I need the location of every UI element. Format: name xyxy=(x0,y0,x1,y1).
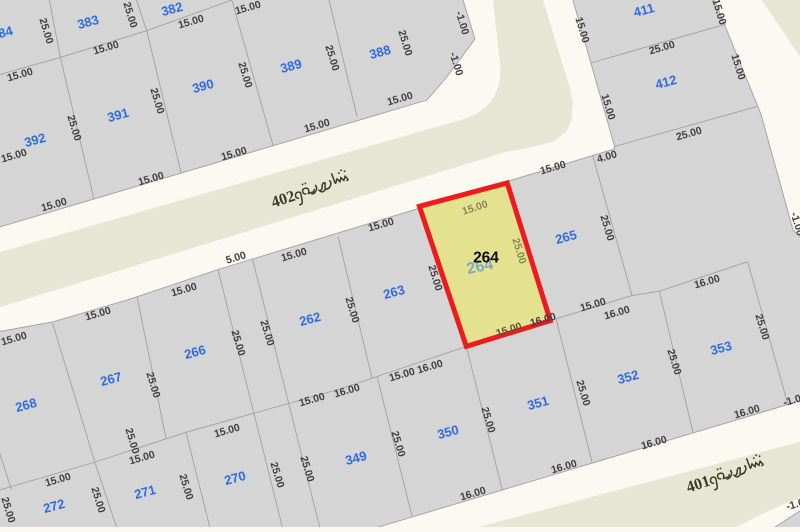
svg-text:264: 264 xyxy=(473,250,499,267)
